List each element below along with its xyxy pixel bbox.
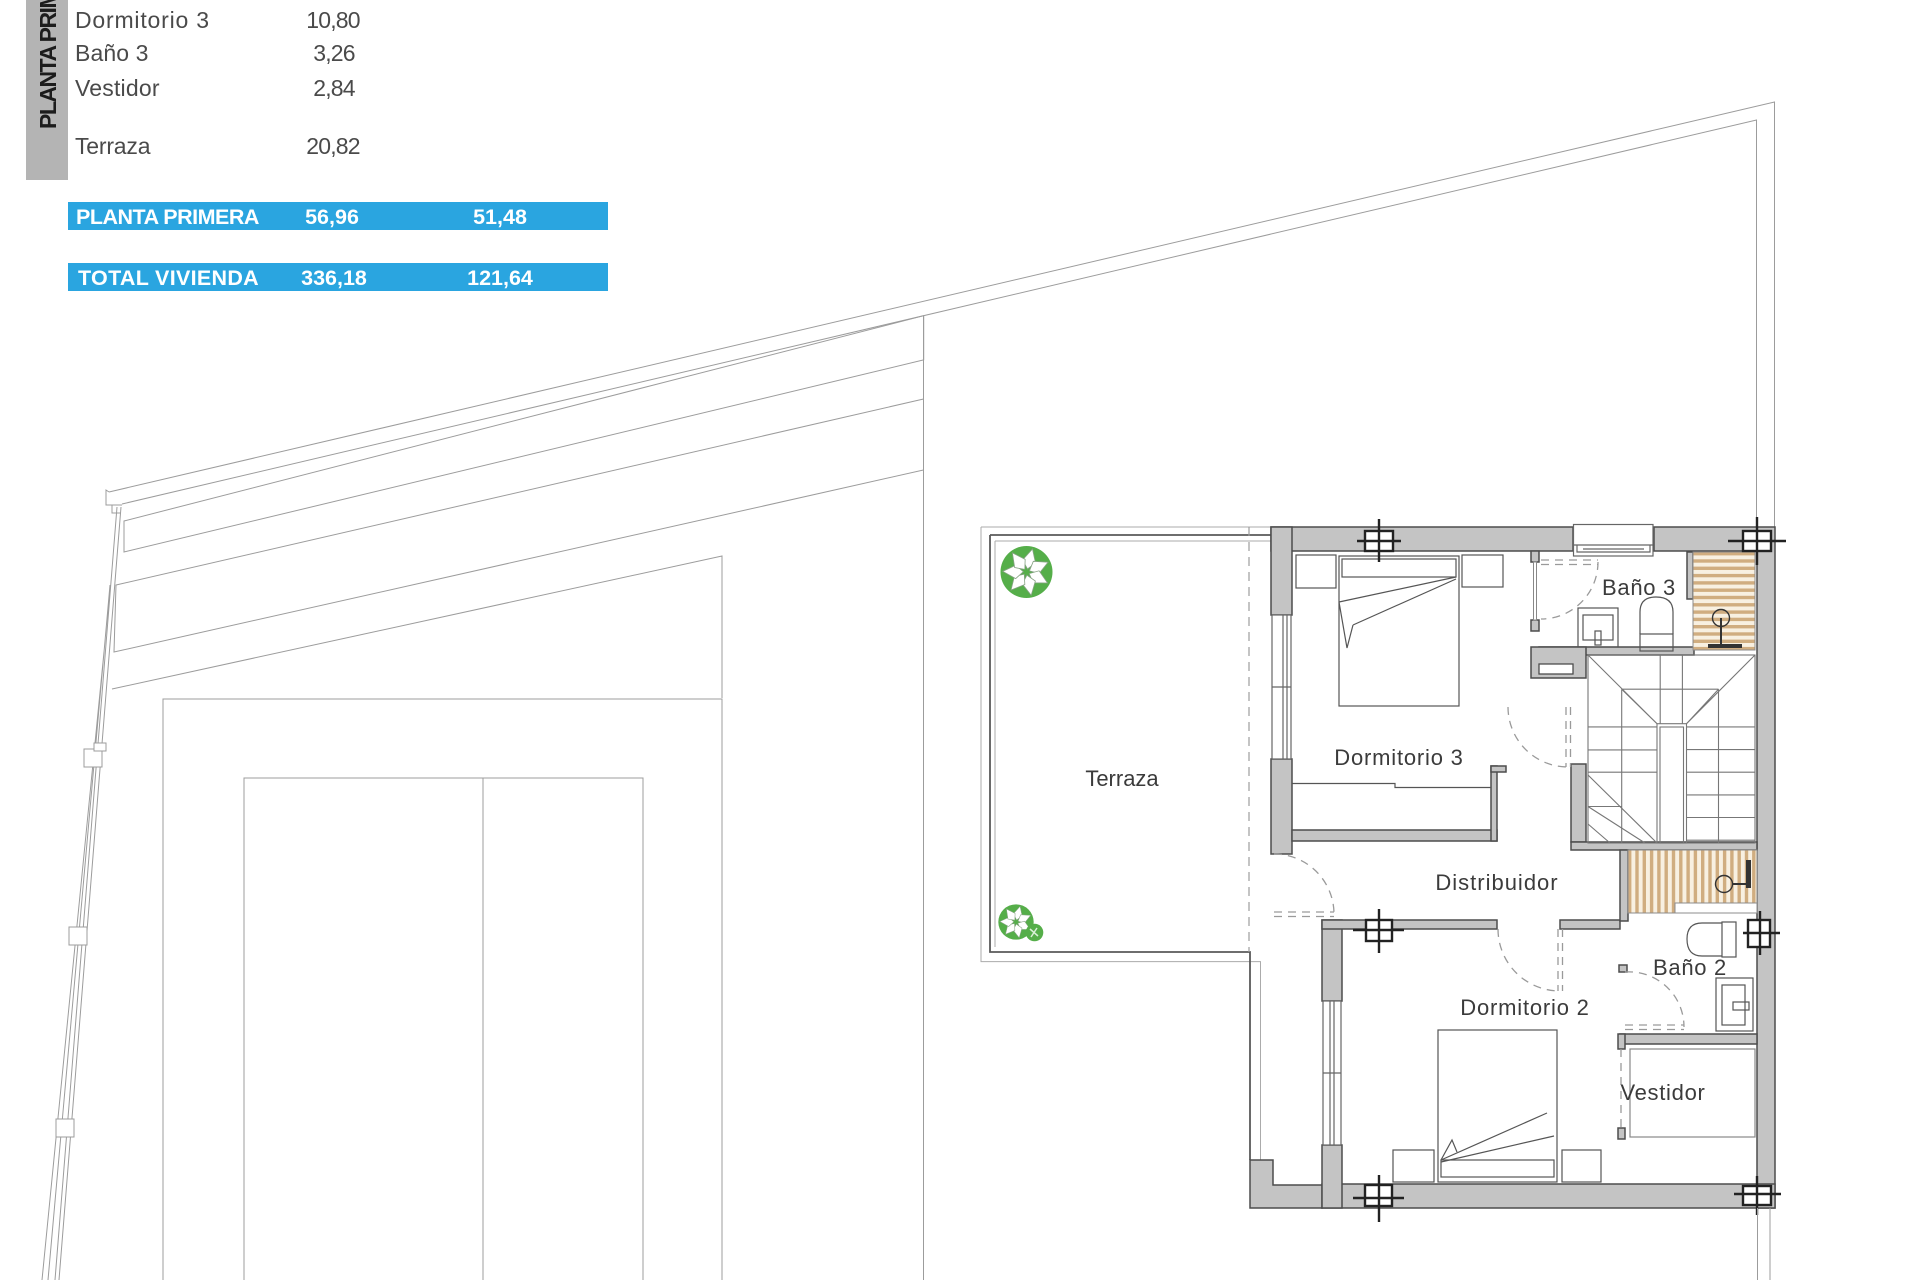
svg-text:TOTAL VIVIENDA: TOTAL VIVIENDA [78, 266, 259, 290]
svg-text:Terraza: Terraza [75, 133, 151, 159]
svg-text:56,96: 56,96 [305, 205, 359, 229]
svg-text:10,80: 10,80 [306, 7, 360, 33]
svg-text:336,18: 336,18 [301, 266, 367, 290]
svg-text:3,26: 3,26 [313, 40, 355, 66]
svg-text:Baño 2: Baño 2 [1653, 955, 1727, 980]
svg-text:121,64: 121,64 [467, 266, 533, 290]
svg-text:51,48: 51,48 [473, 205, 527, 229]
svg-text:PLANTA PRIMERA: PLANTA PRIMERA [35, 0, 61, 129]
svg-text:Dormitorio 3: Dormitorio 3 [75, 7, 210, 33]
svg-text:Distribuidor: Distribuidor [1435, 870, 1558, 895]
svg-text:Dormitorio 3: Dormitorio 3 [1334, 745, 1463, 770]
svg-text:Vestidor: Vestidor [1620, 1080, 1705, 1105]
svg-text:Terraza: Terraza [1085, 766, 1159, 791]
svg-text:Baño 3: Baño 3 [1602, 575, 1676, 600]
svg-text:PLANTA PRIMERA: PLANTA PRIMERA [76, 205, 259, 229]
svg-text:Vestidor: Vestidor [75, 75, 160, 101]
svg-text:2,84: 2,84 [313, 75, 356, 101]
svg-text:20,82: 20,82 [306, 133, 360, 159]
svg-text:Baño 3: Baño 3 [75, 40, 149, 66]
svg-text:Dormitorio 2: Dormitorio 2 [1460, 995, 1589, 1020]
